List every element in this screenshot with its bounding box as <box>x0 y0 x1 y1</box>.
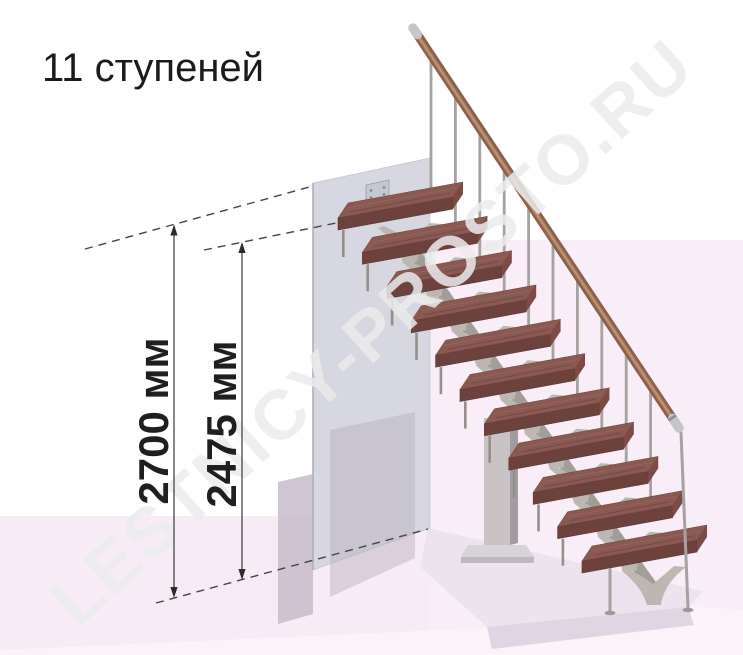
top-step-level-line <box>204 223 336 250</box>
dimension-overall-height: 2700 мм <box>130 225 178 599</box>
dimension-label-2475: 2475 мм <box>198 340 245 507</box>
upper-floor-level-line <box>85 186 313 249</box>
page-title: 11 ступеней <box>42 46 264 90</box>
dimension-label-2700: 2700 мм <box>130 337 177 504</box>
ground-floor-level-line <box>156 529 428 603</box>
staircase-diagram: LESTNICY-PROSTO.RU 11 ступеней 2700 мм 2… <box>0 0 743 655</box>
dimension-to-top-step: 2475 мм <box>198 242 246 580</box>
annotation-layer: 11 ступеней 2700 мм 2475 мм <box>0 0 743 655</box>
